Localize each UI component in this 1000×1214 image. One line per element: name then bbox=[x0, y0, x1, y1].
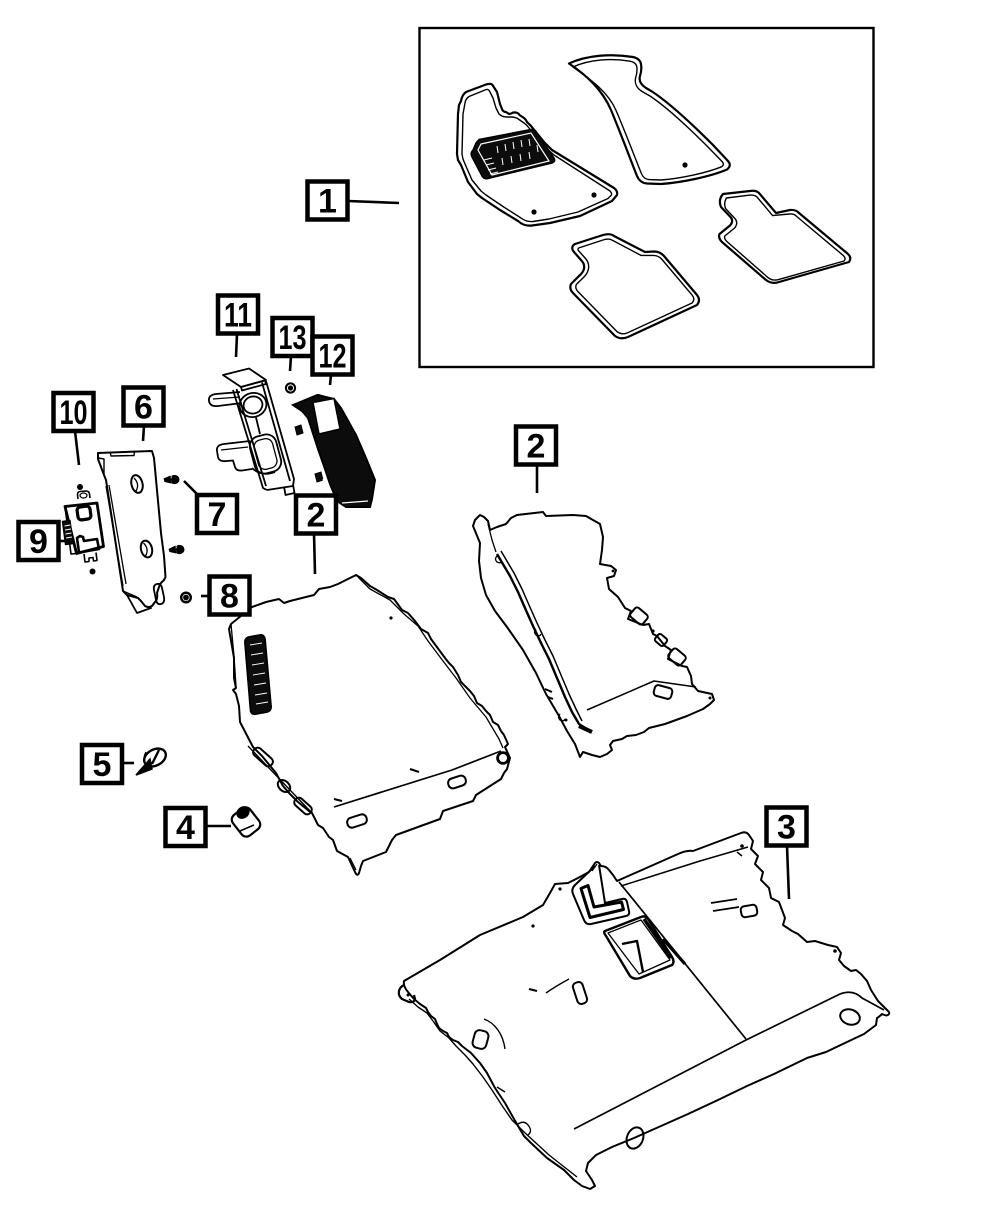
svg-text:6: 6 bbox=[134, 389, 153, 427]
svg-text:5: 5 bbox=[93, 746, 112, 784]
svg-text:13: 13 bbox=[279, 319, 307, 357]
svg-text:3: 3 bbox=[777, 809, 796, 847]
svg-text:11: 11 bbox=[224, 297, 252, 335]
svg-text:10: 10 bbox=[60, 394, 88, 432]
svg-text:2: 2 bbox=[307, 497, 326, 535]
svg-text:12: 12 bbox=[319, 338, 347, 376]
svg-text:4: 4 bbox=[176, 809, 195, 847]
svg-text:8: 8 bbox=[220, 578, 239, 616]
svg-text:1: 1 bbox=[318, 183, 337, 221]
svg-text:7: 7 bbox=[208, 496, 227, 534]
svg-text:2: 2 bbox=[527, 428, 546, 466]
svg-text:9: 9 bbox=[29, 523, 48, 561]
